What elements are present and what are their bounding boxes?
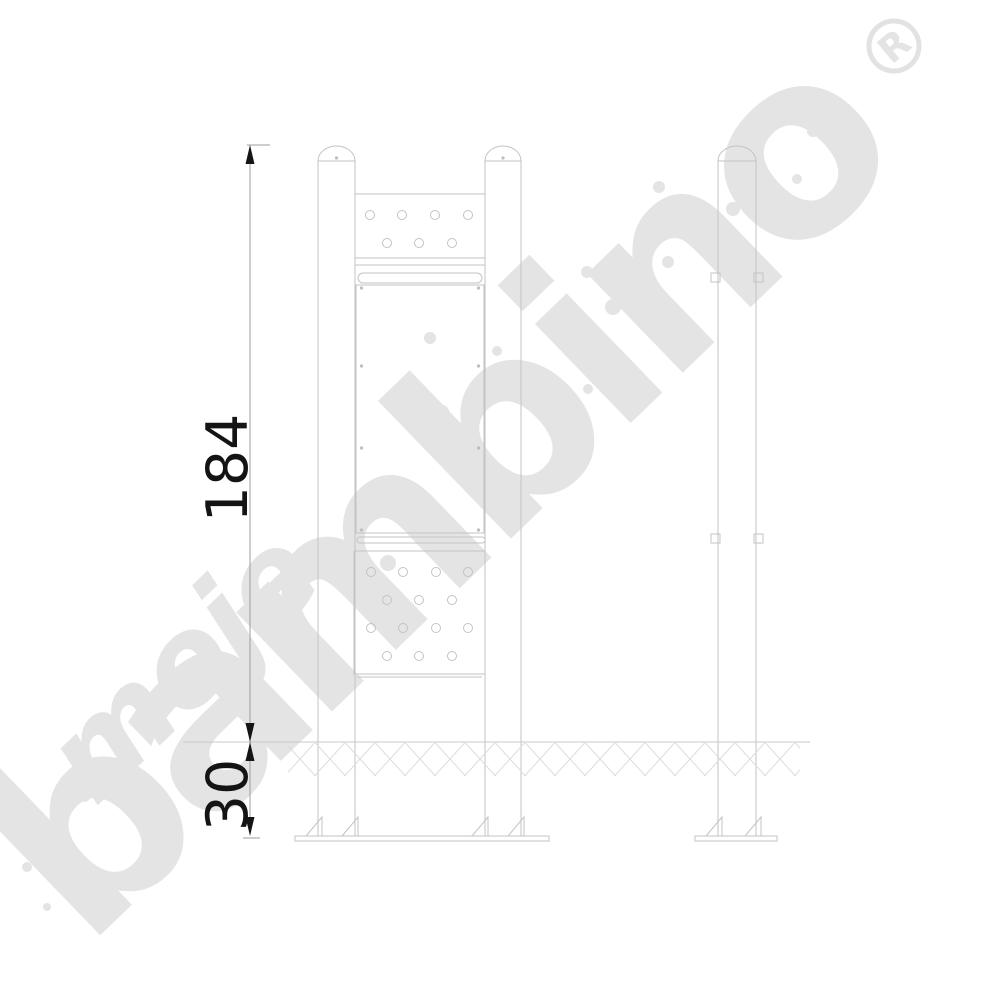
- watermark-bambino-text: bambino: [0, 0, 945, 993]
- panel-top: [355, 194, 485, 265]
- ground-hatch: [288, 743, 800, 776]
- dimension-height-label: 184: [195, 414, 261, 523]
- technical-drawing-canvas: moje bambino R: [0, 0, 1000, 1000]
- drawing-svg: moje bambino R: [0, 0, 1000, 1000]
- base-plate-left: [295, 817, 549, 841]
- registered-trademark-icon: R: [859, 11, 929, 81]
- watermark: moje bambino R: [0, 0, 945, 993]
- base-plate-right: [695, 817, 777, 841]
- dimension-depth-label: 30: [195, 759, 261, 832]
- arrow-up-icon: [246, 145, 255, 164]
